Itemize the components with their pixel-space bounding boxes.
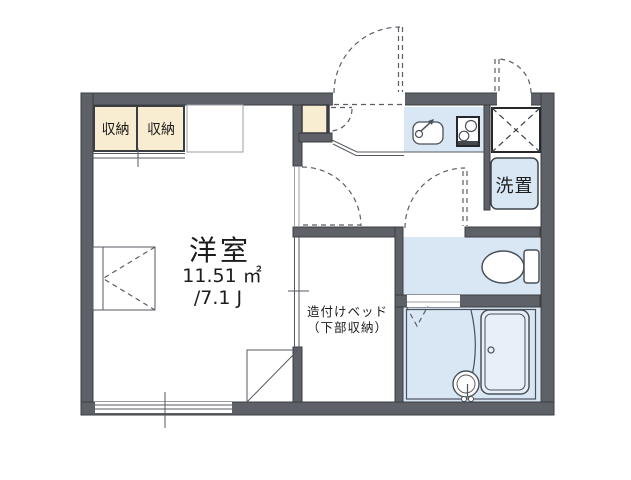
entrance-door-swing-arc [497,59,531,93]
wall-bed-top-right [465,227,540,237]
washer-space: 洗置 [491,158,538,209]
corner-diagonal-square [247,350,298,402]
utility-space-box [187,105,243,152]
corridor-closet-door-arc [330,109,352,131]
wall-entrance-divider [484,105,490,210]
toilet-tank-icon [524,250,539,283]
wall-bed-top-left [293,227,403,237]
opening-bathroom-door [407,295,460,307]
bed-label-line1: 造付けベッド [307,304,388,319]
corner-square-diagonal [247,350,298,402]
opening-entrance-door [497,92,531,106]
stove-grill [458,141,478,145]
room-area-m2-label: 11.51 ㎡ [182,264,261,287]
wall-left [81,93,93,415]
bed-label-line2: （下部収納） [307,320,388,335]
mainroom-door-arc [302,167,361,226]
entrance-step [492,108,540,152]
floorplan: 洗置 収納 収納 洋室 11 [0,0,631,480]
washroom-door-arc [405,168,465,228]
bottom-window [95,392,232,428]
washer-label: 洗置 [496,176,534,197]
stove-burner-1 [466,121,477,132]
closet-right-label: 収納 [147,122,175,138]
room-area-jo-label: /7.1 J [194,287,242,309]
left-window [93,247,155,310]
corridor-closet [302,105,329,133]
basin-knob-1 [462,397,467,402]
room-name-label: 洋室 [189,234,251,267]
counter-front-line-1 [332,140,404,152]
wall-bed-right [395,227,403,402]
wall-right [541,93,554,415]
top-door-swing-arc [334,27,400,93]
wall-mainroom-right-lower [293,347,302,402]
basin-knob-2 [469,397,474,402]
corridor-closet-box [302,105,327,133]
window-gap [95,402,232,413]
toilet-bowl-icon [482,251,524,283]
left-window-box [93,247,155,310]
wall-corridor-closet [299,133,332,142]
toilet [482,250,539,283]
wall-top [81,93,554,105]
casement-swing-mark [103,247,155,310]
faucet-icon [416,131,423,138]
closet-left-label: 収納 [102,122,130,138]
stove-burner-2 [459,131,469,141]
bed-partition [288,166,309,347]
floorplan-drawing: 洗置 収納 収納 洋室 11 [0,0,631,480]
